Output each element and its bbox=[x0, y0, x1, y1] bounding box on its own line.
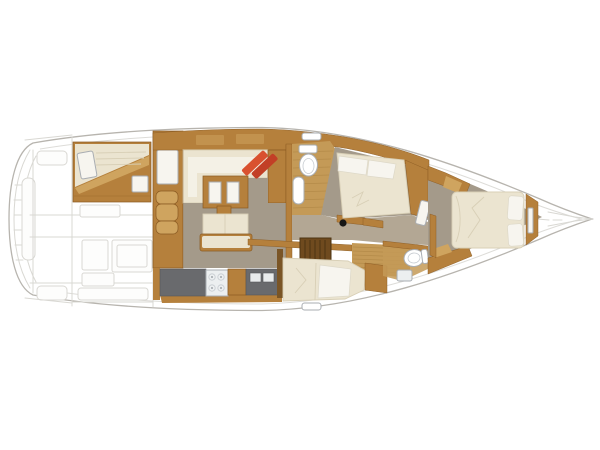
sink-bowl-icon bbox=[263, 273, 274, 282]
toilet-icon bbox=[300, 154, 318, 176]
step bbox=[156, 221, 178, 234]
galley-stove bbox=[206, 270, 228, 296]
louver-door bbox=[300, 238, 331, 262]
burner-dot bbox=[211, 276, 213, 278]
cockpit-table-inner bbox=[117, 245, 147, 267]
head-sink-icon bbox=[293, 177, 304, 204]
pillow bbox=[507, 196, 524, 221]
table-leaf bbox=[209, 182, 221, 203]
companionway-steps bbox=[156, 191, 178, 234]
deck-hatch-inset bbox=[236, 134, 264, 144]
stern-locker-bottom bbox=[37, 286, 67, 300]
pillow bbox=[507, 223, 523, 246]
step bbox=[156, 204, 178, 221]
burner-dot bbox=[220, 287, 222, 289]
toilet-cistern bbox=[421, 249, 429, 264]
galley-counter-left bbox=[160, 269, 206, 296]
aft-cabin-window bbox=[132, 176, 148, 192]
burner-dot bbox=[220, 276, 222, 278]
companionway bbox=[153, 131, 183, 268]
cockpit-bench bbox=[82, 273, 114, 286]
galley-floor-strip bbox=[153, 268, 160, 300]
burner-dot bbox=[211, 287, 213, 289]
lower-cabin-wall bbox=[277, 249, 283, 298]
pillow bbox=[318, 265, 351, 298]
galley bbox=[153, 268, 282, 303]
stern-locker-top bbox=[37, 151, 67, 165]
saloon bbox=[183, 146, 286, 268]
floorplan-svg bbox=[0, 0, 600, 450]
helm-seat bbox=[78, 288, 148, 300]
yacht-floorplan-image bbox=[0, 0, 600, 450]
galley-cabinet-mid bbox=[228, 269, 246, 295]
table-leaf bbox=[227, 182, 239, 203]
mast-step bbox=[339, 219, 346, 226]
head-sink-icon bbox=[397, 270, 412, 281]
cockpit-bench bbox=[80, 205, 120, 217]
saloon-sofa bbox=[200, 214, 252, 251]
step bbox=[156, 191, 178, 204]
sofa-seat bbox=[203, 214, 248, 234]
toilet-upper bbox=[299, 145, 318, 176]
stove-top bbox=[206, 270, 228, 296]
cockpit-bench bbox=[82, 240, 108, 270]
bow-door-frame bbox=[430, 214, 436, 258]
engine-hatch bbox=[157, 150, 178, 184]
toilet-cistern bbox=[299, 145, 317, 153]
bench-cushion bbox=[202, 236, 250, 248]
headboard-slot bbox=[528, 208, 533, 233]
sink-bowl-icon bbox=[250, 273, 261, 282]
deck-hatch-bottom bbox=[302, 303, 321, 310]
deck-hatch-inset bbox=[196, 135, 224, 145]
aft-cabin bbox=[73, 142, 151, 202]
deck-hatch-top bbox=[302, 133, 321, 140]
island-bed bbox=[452, 192, 524, 248]
